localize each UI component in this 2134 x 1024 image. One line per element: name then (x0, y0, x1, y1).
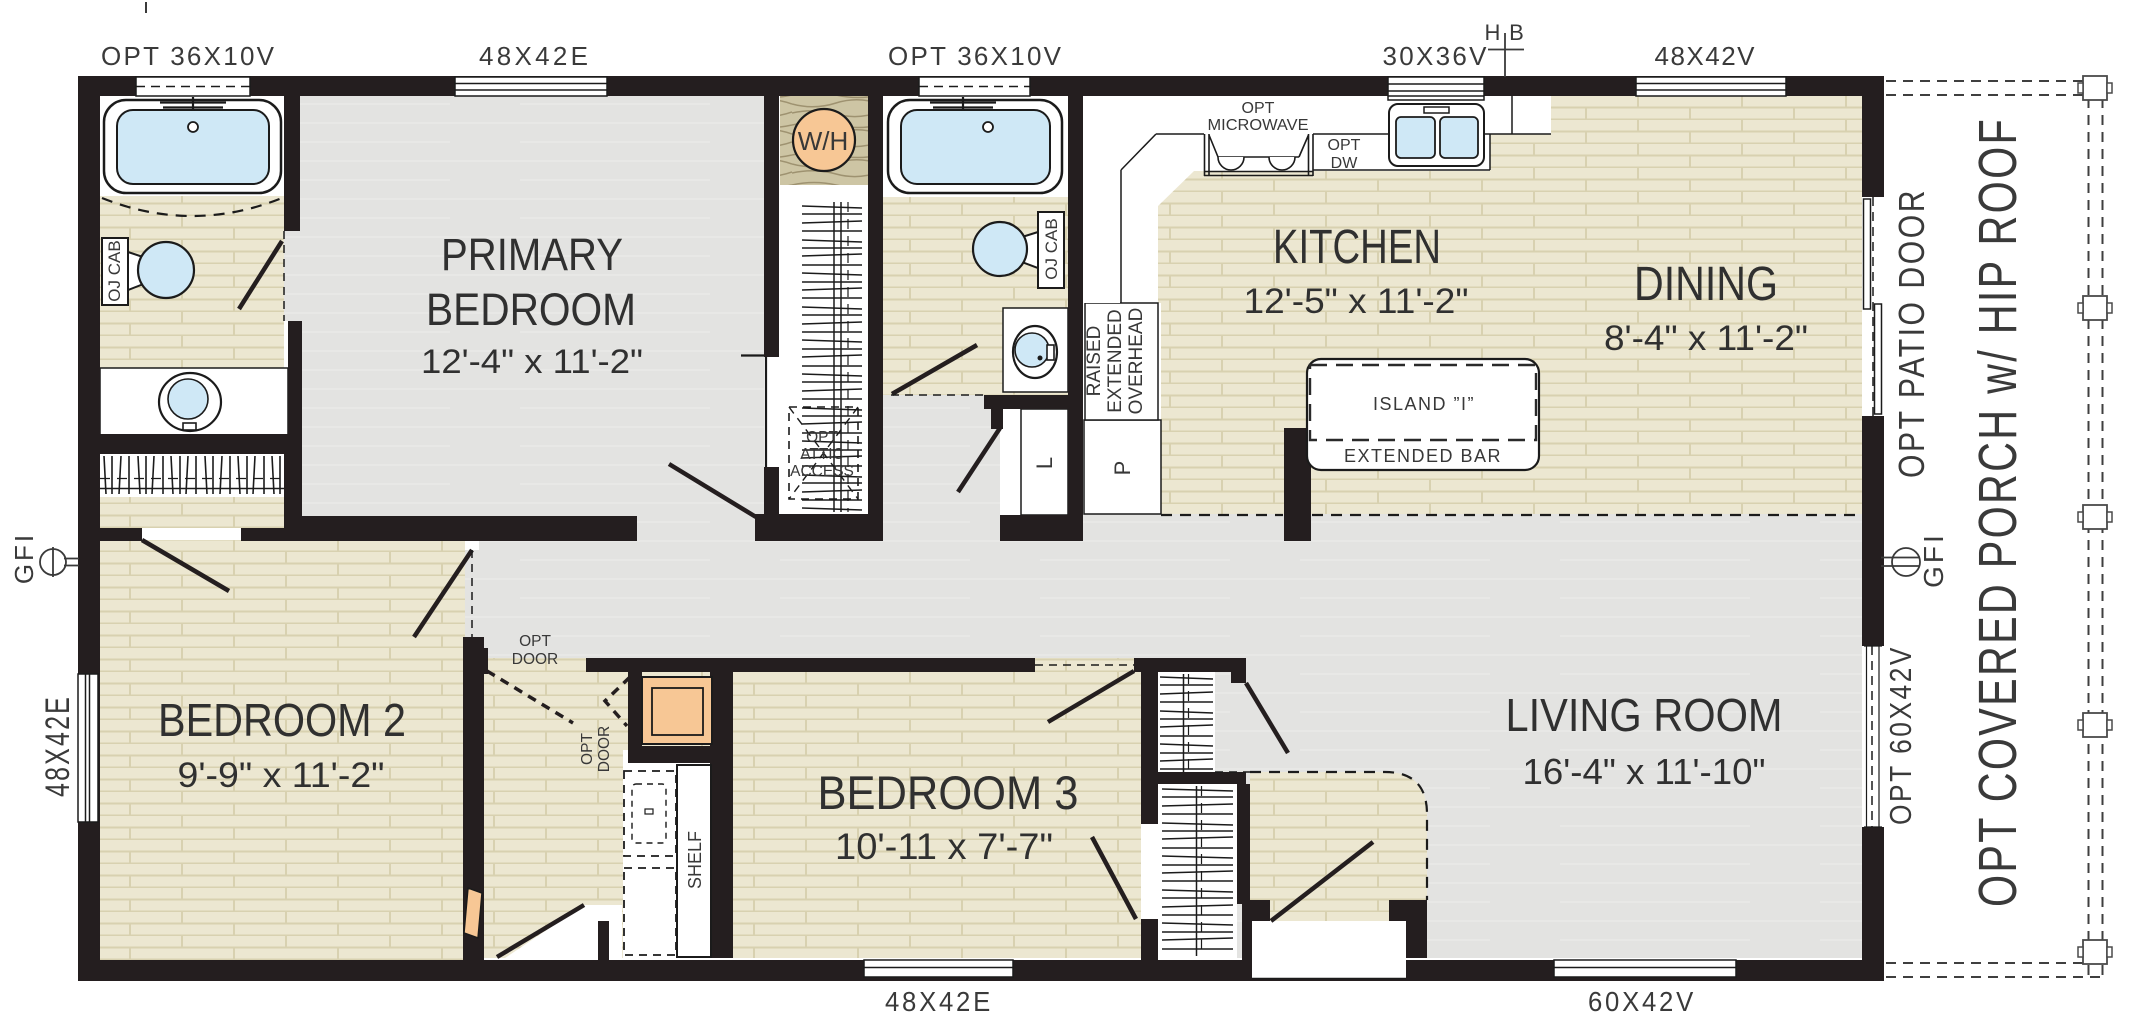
svg-text:16'-4" x 11'-10": 16'-4" x 11'-10" (1523, 751, 1766, 792)
svg-text:DOOR: DOOR (596, 726, 613, 773)
svg-text:BEDROOM 3: BEDROOM 3 (818, 766, 1079, 819)
svg-text:PRIMARY: PRIMARY (441, 229, 623, 280)
svg-text:RAISED: RAISED (1084, 326, 1105, 397)
svg-text:W/H: W/H (798, 126, 849, 156)
svg-text:10'-11 x 7'-7": 10'-11 x 7'-7" (835, 826, 1053, 867)
svg-text:P: P (1110, 461, 1135, 476)
svg-text:OPT: OPT (579, 733, 596, 765)
svg-text:OPT 36X10V: OPT 36X10V (101, 41, 277, 71)
svg-text:ATTIC: ATTIC (800, 446, 844, 463)
svg-text:ISLAND ”I”: ISLAND ”I” (1373, 394, 1475, 414)
svg-text:OPT PATIO DOOR: OPT PATIO DOOR (1891, 188, 1932, 478)
svg-text:OPT: OPT (806, 429, 838, 446)
svg-text:12'-5" x 11'-2": 12'-5" x 11'-2" (1244, 282, 1469, 321)
svg-text:OPT: OPT (1242, 100, 1275, 117)
svg-text:12'-4" x 11'-2": 12'-4" x 11'-2" (421, 343, 643, 381)
svg-text:MICROWAVE: MICROWAVE (1208, 117, 1309, 134)
svg-text:L: L (1032, 457, 1057, 469)
svg-text:OPT 36X10V: OPT 36X10V (888, 41, 1064, 71)
svg-text:DW: DW (1331, 155, 1359, 172)
svg-text:BEDROOM 2: BEDROOM 2 (158, 694, 406, 746)
svg-text:OPT: OPT (1328, 137, 1361, 154)
svg-text:OPT 60X42V: OPT 60X42V (1883, 645, 1918, 825)
svg-text:B: B (1509, 20, 1527, 45)
svg-text:EXTENDED: EXTENDED (1105, 309, 1126, 412)
svg-text:DOOR: DOOR (512, 651, 559, 668)
svg-text:48X42E: 48X42E (885, 986, 993, 1017)
svg-text:GFI: GFI (9, 532, 39, 584)
svg-text:OJ CAB: OJ CAB (1042, 218, 1061, 279)
svg-text:LIVING ROOM: LIVING ROOM (1506, 689, 1783, 741)
svg-text:48X42E: 48X42E (39, 695, 77, 797)
svg-text:OPT: OPT (519, 633, 551, 650)
svg-text:BEDROOM: BEDROOM (426, 284, 636, 335)
svg-text:48X42E: 48X42E (479, 41, 591, 71)
svg-text:ACCESS: ACCESS (790, 463, 854, 480)
svg-text:OVERHEAD: OVERHEAD (1126, 308, 1147, 415)
svg-text:9'-9" x 11'-2": 9'-9" x 11'-2" (178, 756, 385, 795)
svg-text:EXTENDED BAR: EXTENDED BAR (1344, 446, 1502, 466)
svg-text:GFI: GFI (1918, 532, 1949, 588)
svg-text:OPT COVERED PORCH w/ HIP ROOF: OPT COVERED PORCH w/ HIP ROOF (1968, 117, 2028, 907)
svg-text:DINING: DINING (1634, 258, 1778, 311)
svg-text:OJ CAB: OJ CAB (105, 240, 124, 301)
svg-text:48X42V: 48X42V (1655, 41, 1758, 71)
svg-text:30X36V: 30X36V (1383, 41, 1490, 71)
svg-text:KITCHEN: KITCHEN (1273, 221, 1441, 274)
svg-text:60X42V: 60X42V (1588, 986, 1696, 1017)
svg-text:H: H (1485, 20, 1504, 45)
svg-text:SHELF: SHELF (685, 831, 705, 889)
svg-text:8'-4" x 11'-2": 8'-4" x 11'-2" (1604, 319, 1808, 358)
